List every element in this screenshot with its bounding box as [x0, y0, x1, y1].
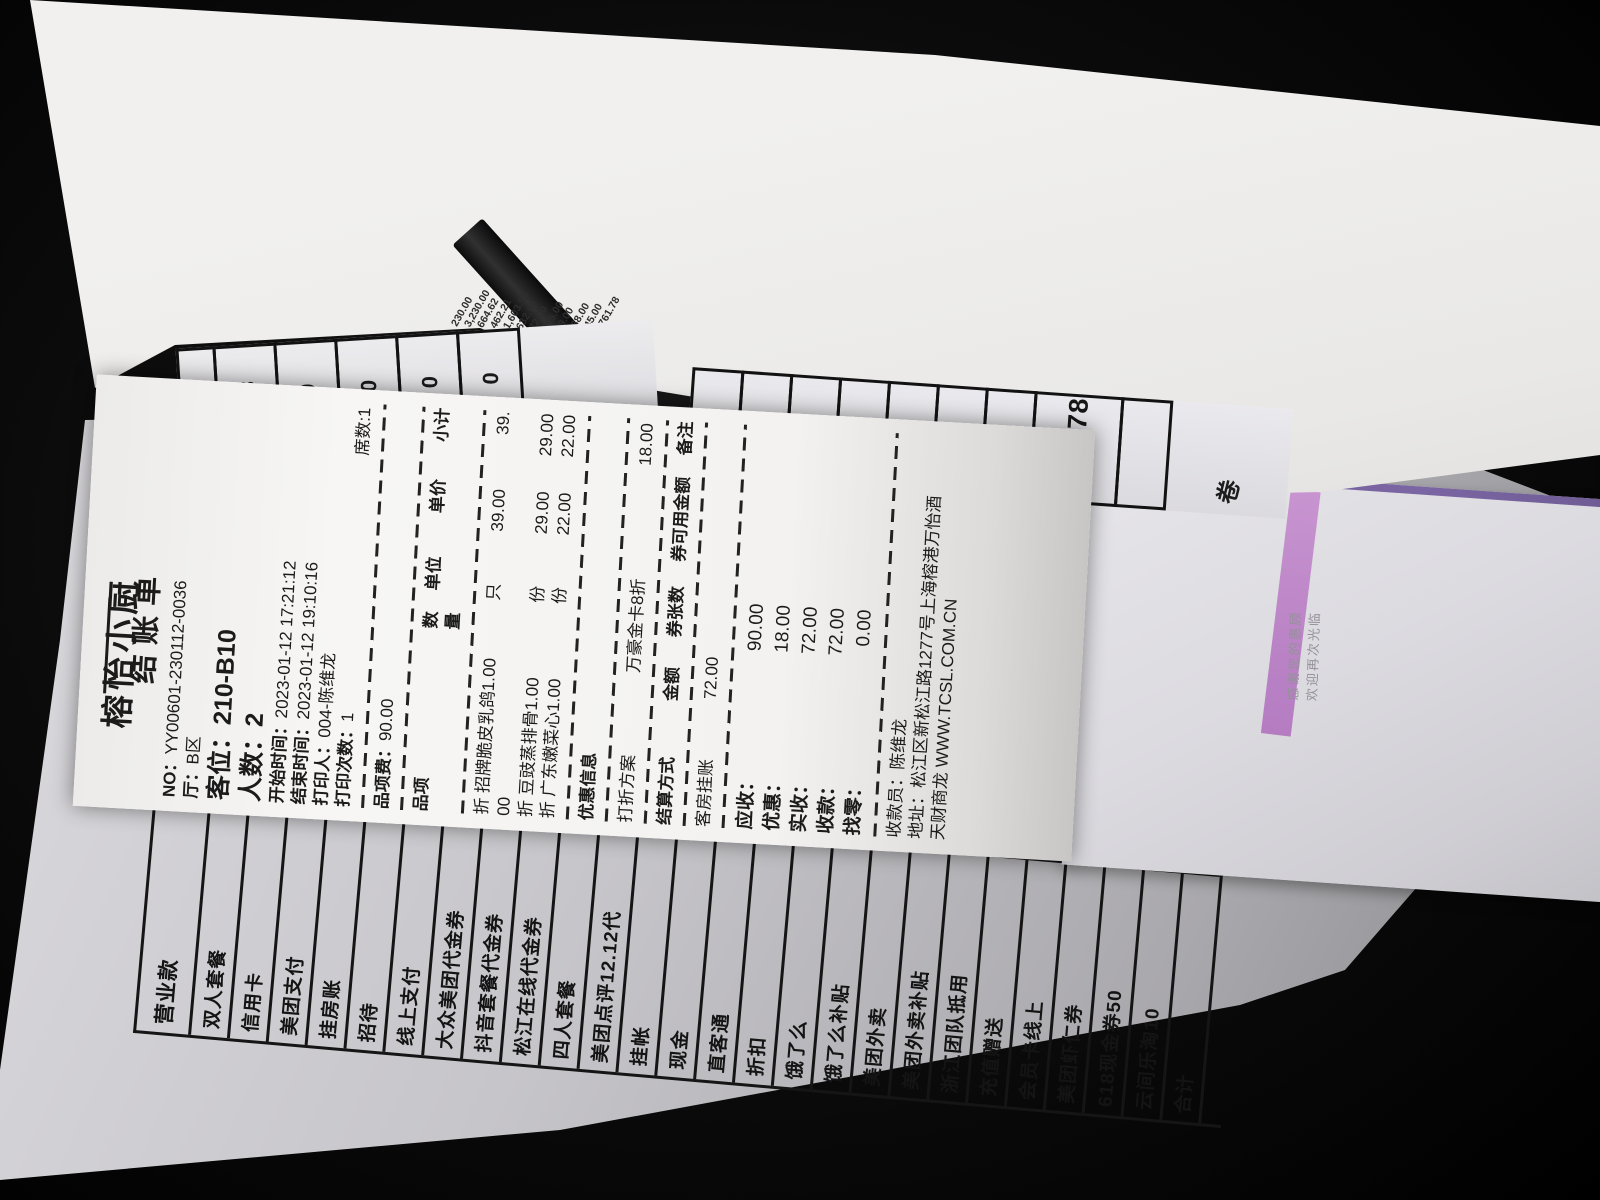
roll-stamp: 卷 — [1163, 401, 1293, 519]
item-fee: 品项费：90.00 — [371, 405, 416, 810]
discount-row: 打折方案 万豪金卡8折 18.00 — [615, 419, 660, 824]
seat-count: 席数:1 — [352, 407, 377, 456]
promo-header: 优惠信息 — [576, 416, 621, 821]
settle-row: 客房挂账 72.00 — [693, 423, 738, 828]
photo-of-receipt-scene: { "receipt": { "title": "榕怡小厨", "subtitl… — [0, 0, 1600, 1200]
thermal-receipt: 榕怡小厨 结账单 NO：YY00601-230112-0036 厅：B区 客位：… — [73, 374, 1096, 861]
envelope-thanks-text: 感谢您的惠顾 欢迎再次光临 — [1283, 610, 1324, 701]
thank-you-envelope: 感谢您的惠顾 欢迎再次光临 — [1062, 463, 1600, 902]
settle-header: 结算方式 金额 券张数 券可用金额 备注 — [654, 421, 699, 826]
